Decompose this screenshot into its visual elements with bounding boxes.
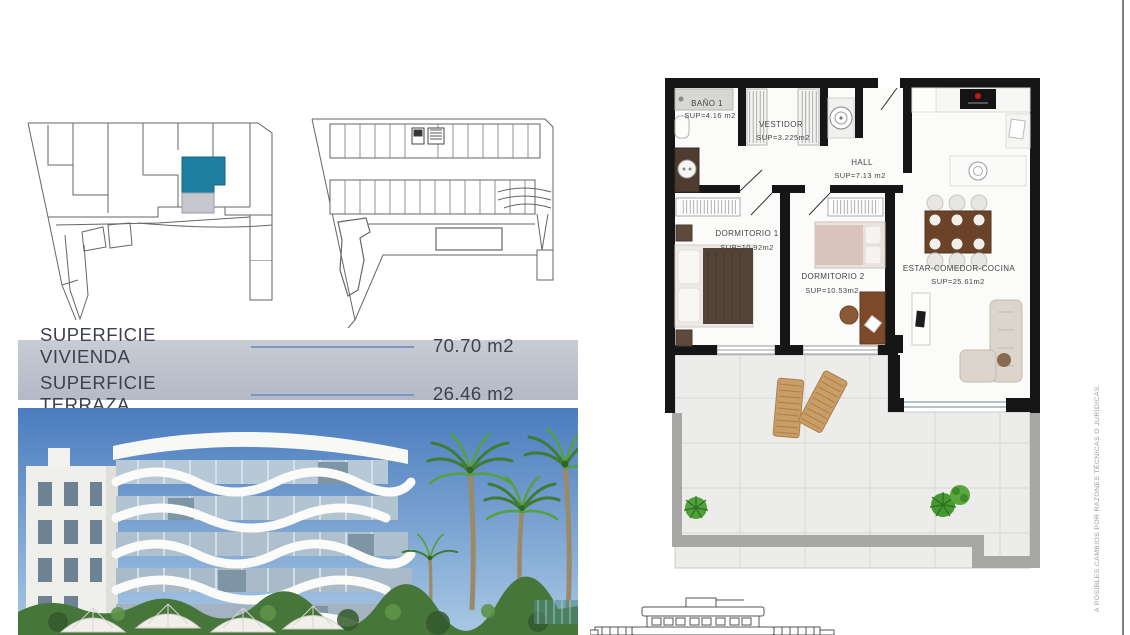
room-area-hall: SUP=7.13 m2 (834, 171, 885, 180)
room-label-hall: HALL (851, 158, 873, 167)
surface-row: SUPERFICIE VIVIENDA 70.70 m2 (40, 324, 514, 368)
dining-set (925, 195, 991, 269)
room-label-estar: ESTAR-COMEDOR-COCINA (903, 264, 1016, 273)
room-area-estar: SUP=25.61m2 (931, 277, 984, 286)
room-label-bano1: BAÑO 1 (691, 99, 723, 108)
room-label-dormitorio2: DORMITORIO 2 (801, 272, 864, 281)
surface-summary-panel: SUPERFICIE VIVIENDA 70.70 m2 SUPERFICIE … (18, 340, 578, 400)
surface-label: SUPERFICIE VIVIENDA (40, 324, 245, 368)
room-area-bano1: SUP=4.16 m2 (684, 111, 735, 120)
room-area-dormitorio2: SUP=10.53m2 (805, 286, 858, 295)
room-label-vestidor: VESTIDOR (759, 120, 803, 129)
surface-value: 70.70 m2 (430, 335, 514, 357)
building-elevation-drawing (590, 583, 845, 635)
apartment-floor-plan: BAÑO 1 SUP=4.16 m2 VESTIDOR SUP=3.225m2 … (650, 68, 1050, 573)
site-plan-parking (308, 100, 588, 330)
leader-line (251, 394, 414, 396)
room-area-dormitorio1: SUP=10.92m2 (720, 243, 773, 252)
room-label-dormitorio1: DORMITORIO 1 (715, 229, 778, 238)
secondary-unit (182, 193, 214, 213)
legal-disclaimer-vertical: A POSIBLES CAMBIOS POR RAZONES TÉCNICAS … (1094, 402, 1101, 612)
brochure-page: SUPERFICIE VIVIENDA 70.70 m2 SUPERFICIE … (0, 0, 1130, 635)
site-plan-overview (18, 95, 303, 323)
leader-line (251, 346, 414, 348)
building-render-photo (18, 408, 578, 635)
surface-value: 26.46 m2 (430, 383, 514, 405)
page-edge-line (1122, 0, 1124, 635)
room-area-vestidor: SUP=3.225m2 (756, 133, 809, 142)
sun-lounger (773, 378, 804, 438)
